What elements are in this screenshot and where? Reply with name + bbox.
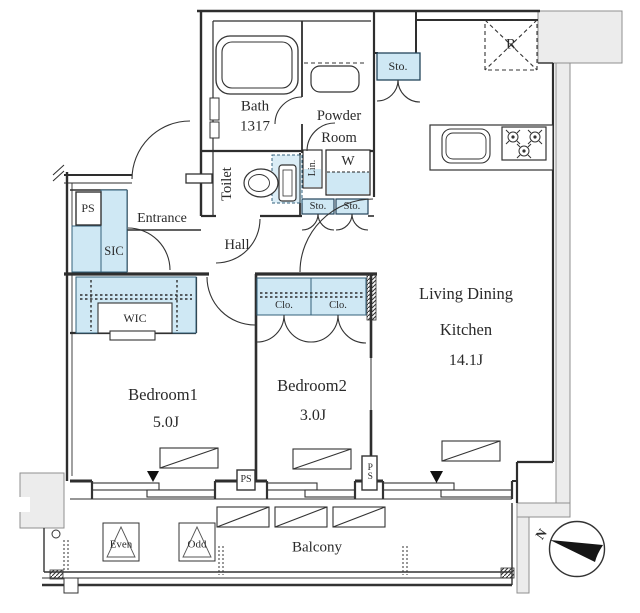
sleeve-markers: [147, 471, 443, 483]
column-hatch: [367, 274, 376, 320]
room-label-toilet: Toilet: [220, 167, 235, 201]
washbasin-icon: [304, 63, 366, 92]
bedroom1-area-label: 5.0J: [153, 415, 179, 431]
room-label-bedroom2: Bedroom2: [277, 378, 347, 395]
kitchen-counter: [430, 125, 553, 170]
bedroom2-area-label: 3.0J: [300, 408, 326, 424]
washer-label: W: [341, 155, 354, 169]
outdoor-units: [217, 507, 385, 527]
room-label-hall: Hall: [225, 238, 250, 253]
ldk-area-label: 14.1J: [449, 353, 483, 369]
floorplan-page: Bath 1317 Powder Room Toilet Lin. W Sto.…: [0, 0, 640, 613]
wic-opening: [110, 331, 155, 340]
room-label-balcony: Balcony: [292, 541, 342, 556]
kitchen-sink-icon: [442, 129, 490, 163]
floorplan-drawing: [0, 0, 640, 613]
room-label-powder-1: Powder: [317, 109, 361, 124]
closet-label-right: Clo.: [329, 301, 347, 312]
toilet-icon: [244, 165, 296, 201]
ac-units: [160, 441, 500, 469]
compass-icon: [550, 522, 605, 577]
room-label-powder-2: Room: [321, 131, 356, 146]
odd-marker-label: Odd: [188, 540, 207, 551]
pipe-space-bottom-label: PS: [240, 475, 251, 485]
room-label-bedroom1: Bedroom1: [128, 387, 198, 404]
window-bedroom1: [92, 481, 215, 499]
linen-label: Lin.: [308, 160, 318, 176]
storage-label-ldk: Sto.: [388, 60, 407, 72]
room-label-ldk-2: Kitchen: [440, 322, 492, 339]
bath-size-label: 1317: [240, 120, 270, 135]
even-marker-label: Even: [110, 540, 133, 551]
windows: [92, 481, 512, 499]
room-label-entrance: Entrance: [137, 212, 187, 226]
room-label-ldk-1: Living Dining: [419, 286, 513, 303]
walls: [53, 11, 553, 503]
room-label-bath: Bath: [241, 100, 269, 115]
storage-label-hall-left: Sto.: [310, 202, 327, 213]
fridge-label: R: [506, 38, 516, 53]
storage-label-hall-right: Sto.: [344, 202, 361, 213]
pipe-space-ldk-label: PS: [365, 463, 375, 481]
wic-label: WIC: [123, 312, 146, 324]
sic-label: SIC: [104, 245, 123, 258]
window-ldk: [383, 481, 512, 499]
pipe-space-entry-label: PS: [81, 202, 94, 214]
window-bedroom2: [267, 481, 355, 499]
closet-label-left: Clo.: [275, 301, 293, 312]
